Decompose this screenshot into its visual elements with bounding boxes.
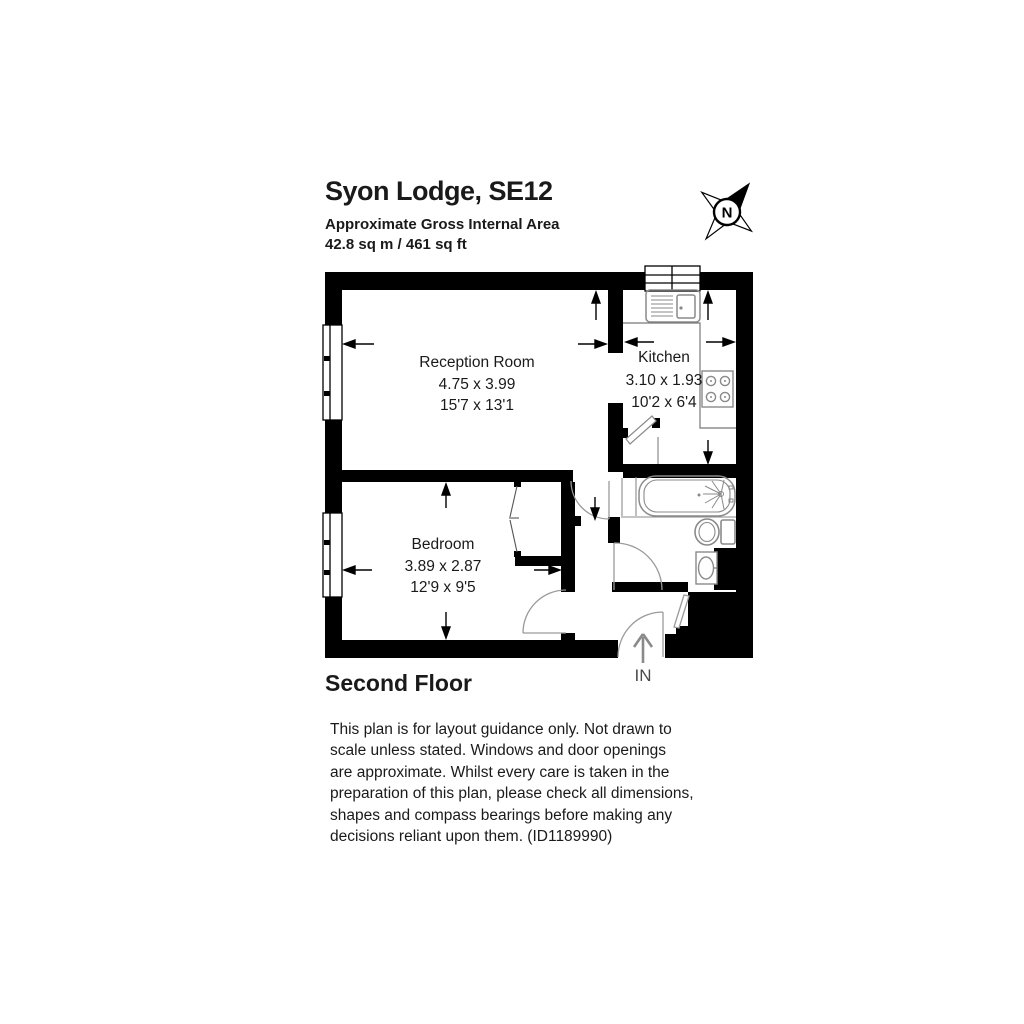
- basin-icon: [696, 552, 717, 584]
- toilet-icon: [695, 519, 735, 545]
- room-name-kitchen: Kitchen: [638, 349, 690, 366]
- window-icon: [323, 325, 342, 420]
- floor-plan: N: [0, 0, 1024, 1024]
- room-name-bedroom: Bedroom: [412, 536, 475, 553]
- compass-rose-icon: N: [681, 164, 774, 258]
- bath-icon: [621, 476, 736, 517]
- hob-icon: [702, 371, 733, 407]
- room-dim-imperial-kitchen: 10'2 x 6'4: [631, 394, 697, 411]
- room-dim-imperial-reception: 15'7 x 13'1: [440, 397, 514, 414]
- room-name-reception: Reception Room: [419, 354, 534, 371]
- door-arc-icon: [523, 481, 689, 657]
- room-dim-imperial-bedroom: 12'9 x 9'5: [410, 579, 475, 596]
- window-icon: [645, 266, 700, 291]
- entrance-arrow-icon: [634, 634, 652, 663]
- entrance-label: IN: [635, 666, 652, 685]
- kitchen-cupboard-door: [626, 416, 658, 464]
- wardrobe-icon: [509, 486, 519, 552]
- room-dim-metric-bedroom: 3.89 x 2.87: [405, 558, 482, 575]
- room-dim-metric-reception: 4.75 x 3.99: [439, 376, 516, 393]
- window-icon: [323, 513, 342, 597]
- room-dim-metric-kitchen: 3.10 x 1.93: [626, 372, 703, 389]
- sink-icon: [646, 290, 700, 322]
- compass-north-label: N: [722, 205, 733, 222]
